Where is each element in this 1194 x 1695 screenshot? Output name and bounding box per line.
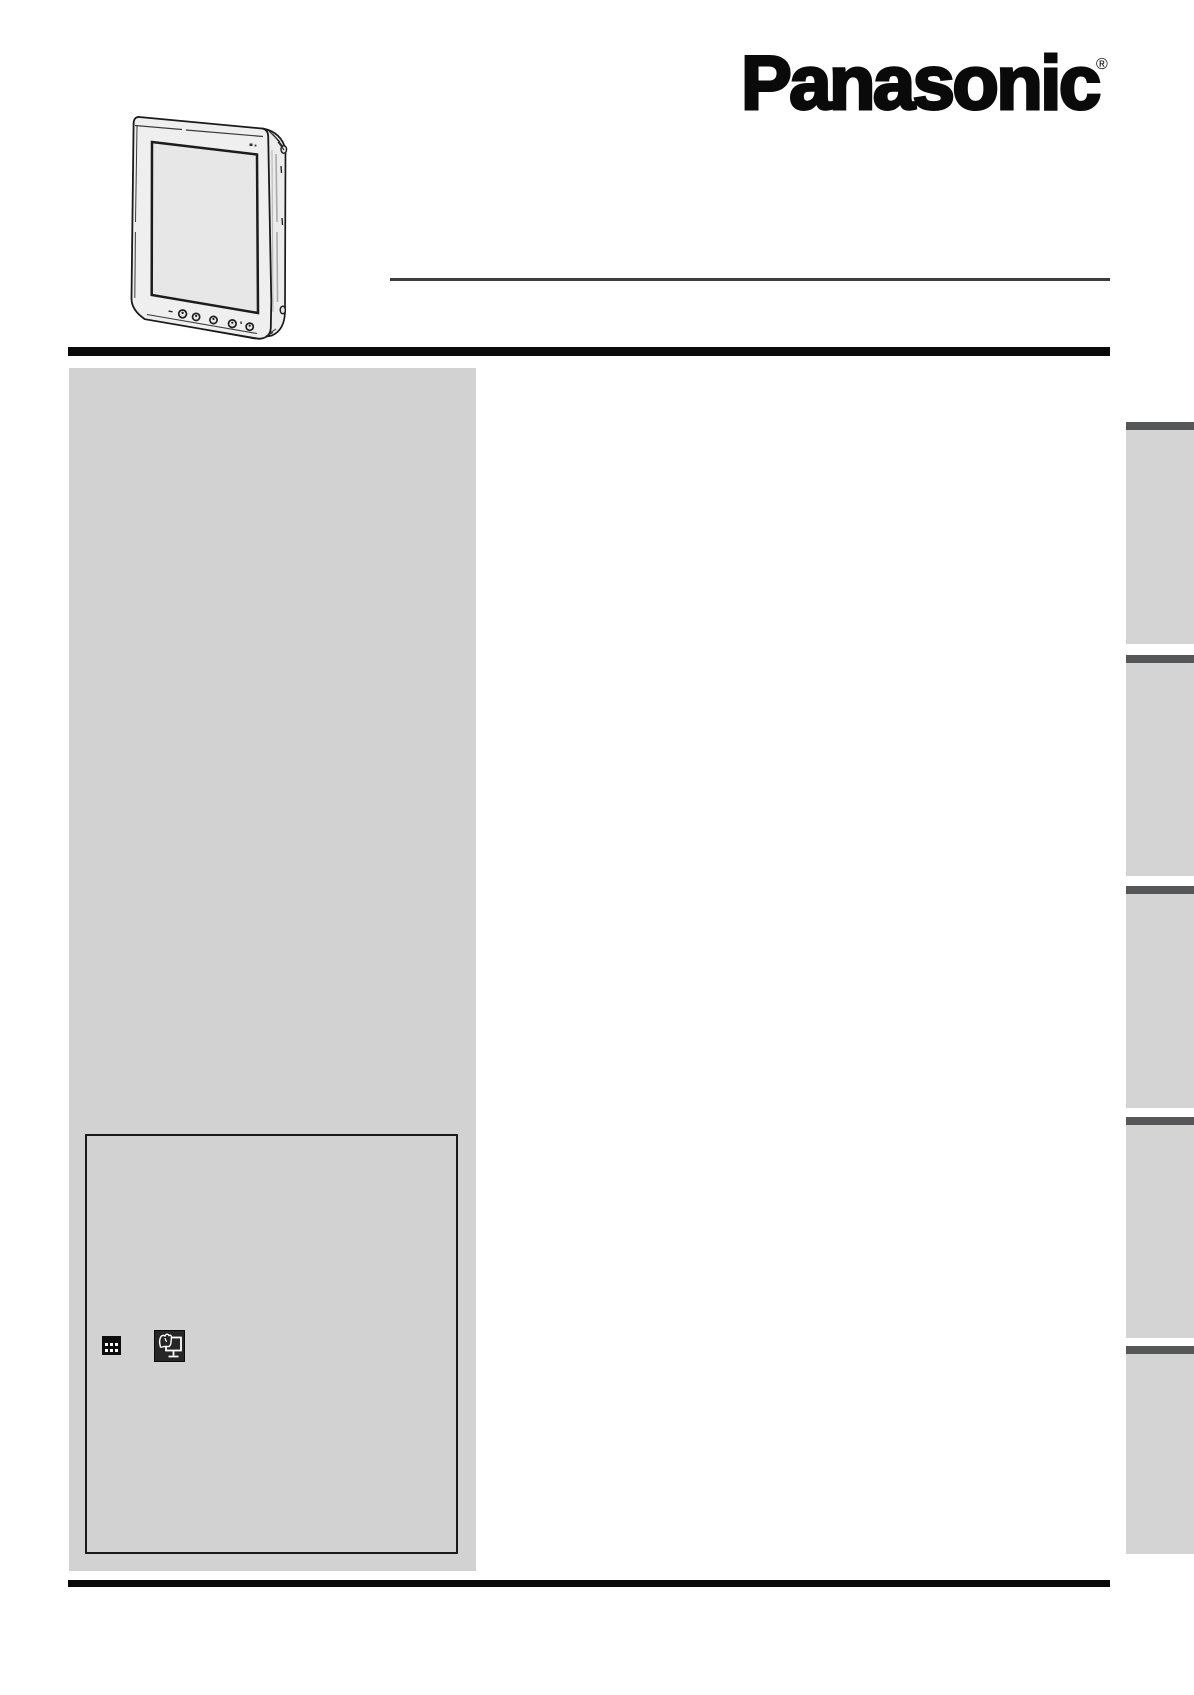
svg-text:Panasonic: Panasonic [741,41,1100,120]
svg-text:®: ® [1096,56,1108,73]
